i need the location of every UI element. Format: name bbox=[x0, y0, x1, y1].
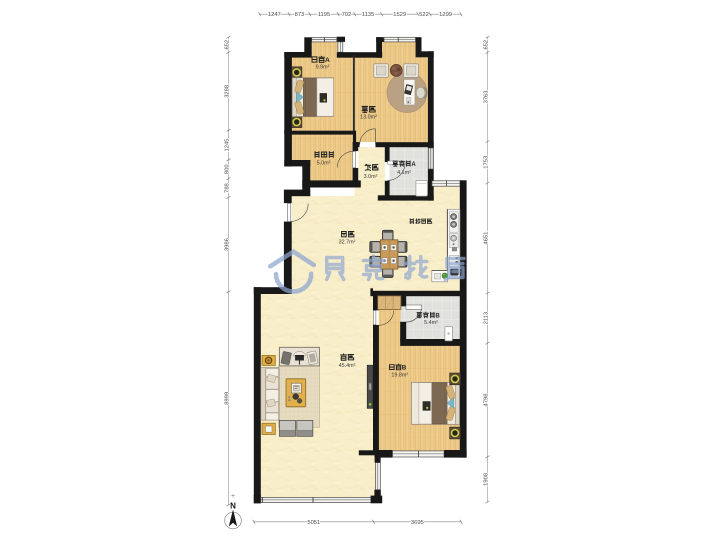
svg-text:522: 522 bbox=[419, 12, 429, 18]
svg-text:800: 800 bbox=[225, 164, 231, 174]
svg-text:1529: 1529 bbox=[393, 12, 406, 18]
svg-text:1753: 1753 bbox=[484, 156, 490, 169]
svg-text:702: 702 bbox=[342, 12, 352, 18]
svg-text:5051: 5051 bbox=[307, 520, 320, 526]
svg-text:1135: 1135 bbox=[362, 12, 374, 18]
svg-text:N: N bbox=[230, 502, 236, 511]
svg-text:2113: 2113 bbox=[484, 312, 490, 324]
svg-text:9.9m²: 9.9m² bbox=[316, 64, 330, 70]
svg-text:5.0m²: 5.0m² bbox=[317, 161, 331, 167]
svg-text:B: B bbox=[435, 312, 440, 319]
svg-text:13.0m²: 13.0m² bbox=[360, 115, 377, 121]
svg-text:5.4m²: 5.4m² bbox=[424, 320, 438, 326]
svg-text:3.0m²: 3.0m² bbox=[364, 174, 378, 180]
svg-text:1247: 1247 bbox=[268, 12, 281, 18]
svg-text:32.7m²: 32.7m² bbox=[339, 239, 356, 245]
svg-text:19.8m²: 19.8m² bbox=[391, 373, 408, 379]
svg-text:3986: 3986 bbox=[225, 238, 231, 251]
svg-text:A: A bbox=[325, 57, 330, 64]
svg-text:873: 873 bbox=[295, 12, 305, 18]
svg-text:8999: 8999 bbox=[225, 392, 231, 405]
svg-text:1908: 1908 bbox=[484, 473, 490, 486]
svg-text:3288: 3288 bbox=[225, 85, 231, 98]
svg-text:1299: 1299 bbox=[439, 12, 452, 18]
svg-text:652: 652 bbox=[225, 40, 231, 50]
svg-text:4798: 4798 bbox=[484, 394, 490, 407]
svg-text:4651: 4651 bbox=[484, 232, 490, 245]
svg-text:3763: 3763 bbox=[484, 90, 490, 103]
svg-text:B: B bbox=[402, 365, 407, 372]
svg-text:45.4m²: 45.4m² bbox=[339, 363, 356, 369]
svg-text:652: 652 bbox=[484, 40, 490, 50]
svg-text:1245: 1245 bbox=[225, 139, 231, 152]
svg-text:1195: 1195 bbox=[318, 12, 330, 18]
svg-text:3695: 3695 bbox=[411, 520, 424, 526]
svg-text:A: A bbox=[411, 161, 416, 168]
svg-text:4.1m²: 4.1m² bbox=[397, 170, 411, 176]
svg-text:788: 788 bbox=[225, 183, 231, 193]
